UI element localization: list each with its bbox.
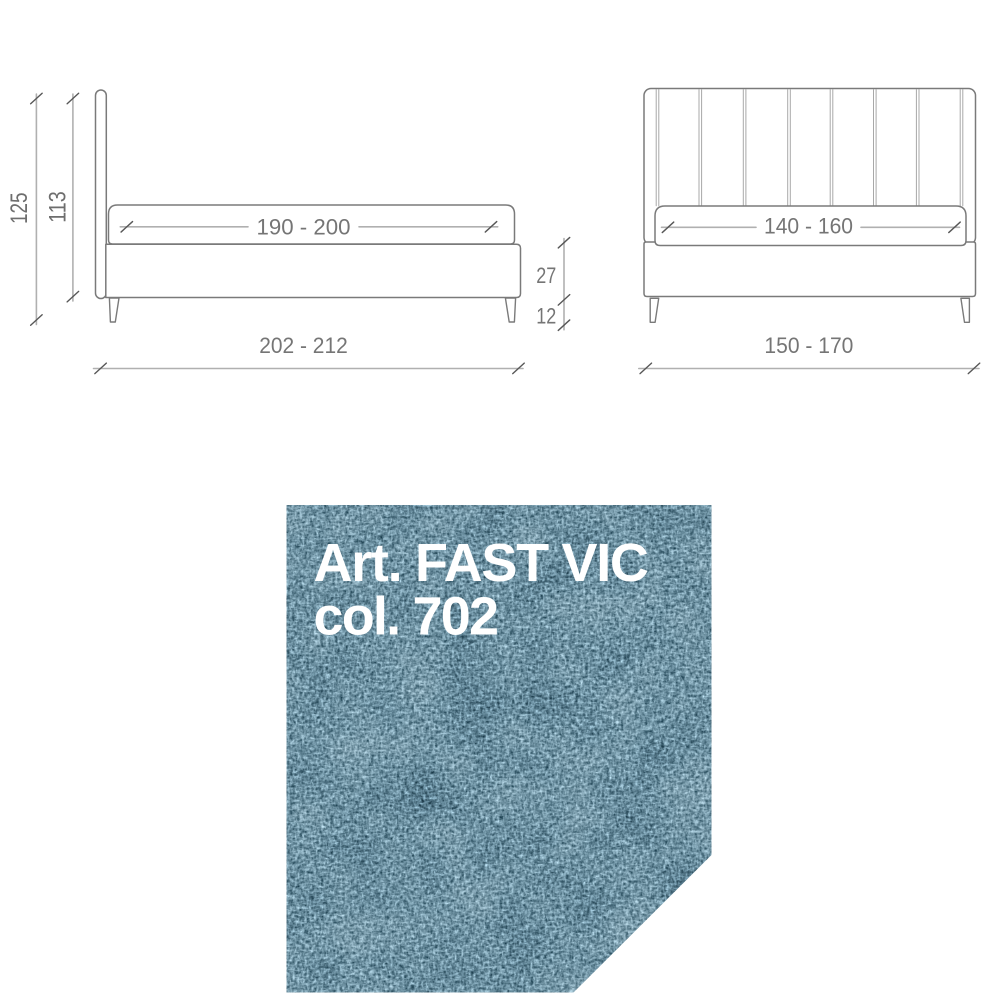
svg-text:col. 702: col. 702	[314, 587, 498, 647]
svg-text:190 - 200: 190 - 200	[257, 214, 351, 239]
svg-text:125: 125	[6, 193, 33, 225]
svg-text:27: 27	[536, 263, 556, 288]
svg-text:140 - 160: 140 - 160	[764, 214, 853, 239]
svg-text:12: 12	[536, 304, 556, 329]
svg-text:Art. FAST VIC: Art. FAST VIC	[314, 533, 648, 593]
svg-text:202 - 212: 202 - 212	[259, 333, 348, 358]
svg-text:150 - 170: 150 - 170	[764, 333, 853, 358]
svg-text:113: 113	[44, 191, 71, 223]
